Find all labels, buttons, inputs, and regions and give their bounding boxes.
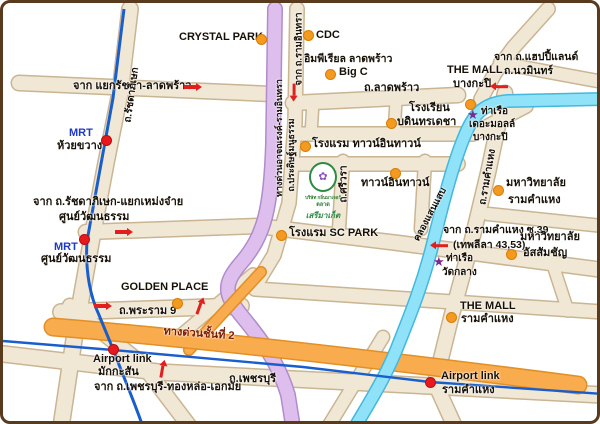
label-mrt-culture-2: ศูนย์วัฒนธรรม: [41, 253, 111, 266]
label-expressway-atnarong: ทางด่วนอาจณรงค์-รามอินทรา: [274, 79, 284, 197]
label-bodindecha-school-1: โรงเรียน: [409, 102, 450, 115]
marker-cdc: [303, 30, 314, 41]
label-crystal-park: CRYSTAL PARK: [179, 31, 263, 44]
label-assumption-univ-1: มหาวิทยาลัย: [520, 231, 580, 244]
flower-icon: ✿: [318, 172, 327, 183]
label-rama9-road: ถ.พระราม 9: [119, 305, 176, 318]
label-from-raminthra: จาก ถ.รามอินทรา: [295, 12, 306, 85]
label-airport-link-ram-2: รามคำแหง: [442, 384, 495, 397]
marker-town-in-town: [390, 168, 401, 179]
label-assumption-univ-2: อัสสัมชัญ: [523, 247, 567, 260]
label-mrt-huaikhwang-2: ห้วยขวาง: [57, 140, 102, 153]
bangkok-directions-map: ✿ บริษัท กลิ่นมาเจอร์ ตลาด เสรีมาเก็ต CR…: [0, 0, 600, 424]
label-from-mengjai-1: จาก ถ.รัชดาภิเษก-แยกเหม่งจ๋าย: [33, 196, 183, 209]
label-town-in-town: ทาวน์อินทาวน์: [361, 177, 429, 190]
label-mrt-culture-1: MRT: [54, 241, 78, 254]
label-airport-link-makkasan-1: Airport link: [93, 353, 152, 366]
marker-the-mall-ram: [446, 312, 457, 323]
label-srivara-road: ถ.ศรีวรา: [338, 165, 350, 202]
label-pier-the-mall-3: บางกะปิ: [473, 132, 508, 144]
label-mrt-huaikhwang-1: MRT: [69, 127, 93, 140]
marker-ramkhamhaeng-univ: [493, 185, 504, 196]
label-sc-park-hotel: โรงแรม SC PARK: [289, 227, 378, 240]
marker-crystal-park: [256, 34, 267, 45]
pier-the-mall-star-icon: ★: [467, 108, 479, 121]
label-the-mall-ram-2: รามคำแหง: [461, 313, 514, 326]
marker-mrt-culture-centre: [79, 234, 90, 245]
label-from-phetchaburi: จาก ถ.เพชรบุรี-ทองหล่อ-เอกมัย: [94, 381, 241, 394]
marker-big-c: [325, 69, 336, 80]
arrow-right-rama9-icon: [94, 304, 106, 307]
label-ramkhamhaeng-univ-2: รามคำแหง: [508, 194, 561, 207]
label-pier-the-mall-1: ท่าเรือ: [481, 106, 508, 118]
marker-airport-link-makkasan: [108, 344, 119, 355]
label-cdc: CDC: [316, 29, 340, 42]
label-pier-watklang-2: วัดกลาง: [442, 267, 477, 279]
company-logo-line3: เสรีมาเก็ต: [295, 209, 351, 222]
marker-mrt-huaikhwang: [101, 135, 112, 146]
label-golden-place: GOLDEN PLACE: [121, 281, 208, 294]
marker-bodindecha-school: [386, 118, 397, 129]
company-logo-flower-icon: ✿: [309, 162, 337, 192]
label-ladprao-road: ถ.ลาดพร้าว: [364, 82, 419, 95]
label-imperial-ladprao: อิมพีเรียล ลาดพร้าว: [304, 53, 392, 65]
label-from-happyland-2: ถ.นวมินทร์: [504, 65, 553, 77]
arrow-left-mall-bangkapi-icon: [496, 85, 508, 88]
arrow-right-mengjai-icon: [115, 230, 127, 233]
label-pradit-manutham-road: ถ.ประดิษฐ์มนูธรรม: [286, 118, 296, 191]
label-pier-watklang-1: ท่าเรือ: [446, 253, 473, 265]
label-ramkhamhaeng-univ-1: มหาวิทยาลัย: [506, 177, 566, 190]
label-bodindecha-school-2: บดินทรเดชา: [397, 116, 456, 129]
arrow-right-ladprao-icon: [184, 85, 196, 88]
label-the-mall-bangkapi-2: บางกะปิ: [453, 78, 491, 91]
arrow-left-ram39-icon: [436, 244, 448, 247]
marker-golden-place: [172, 298, 183, 309]
marker-sc-park: [276, 230, 287, 241]
label-from-happyland-1: จาก ถ.แฮปปี้แลนด์: [494, 51, 578, 63]
label-the-mall-bangkapi-1: THE MALL: [447, 64, 503, 77]
label-from-mengjai-2: ศูนย์วัฒนธรรม: [59, 211, 129, 224]
pier-watklang-star-icon: ★: [433, 255, 445, 268]
marker-hotel-town-in-town: [300, 141, 311, 152]
label-hotel-town-in-town: โรงแรม ทาวน์อินทาวน์: [312, 138, 421, 151]
label-big-c: Big C: [339, 66, 368, 79]
label-airport-link-ram-1: Airport link: [441, 370, 500, 383]
arrow-down-raminthra-icon: [292, 84, 295, 96]
marker-assumption-univ: [506, 249, 517, 260]
label-the-mall-ram-1: THE MALL: [460, 300, 516, 313]
label-airport-link-makkasan-2: มักกะสัน: [98, 366, 139, 379]
marker-airport-link-ram: [425, 377, 436, 388]
